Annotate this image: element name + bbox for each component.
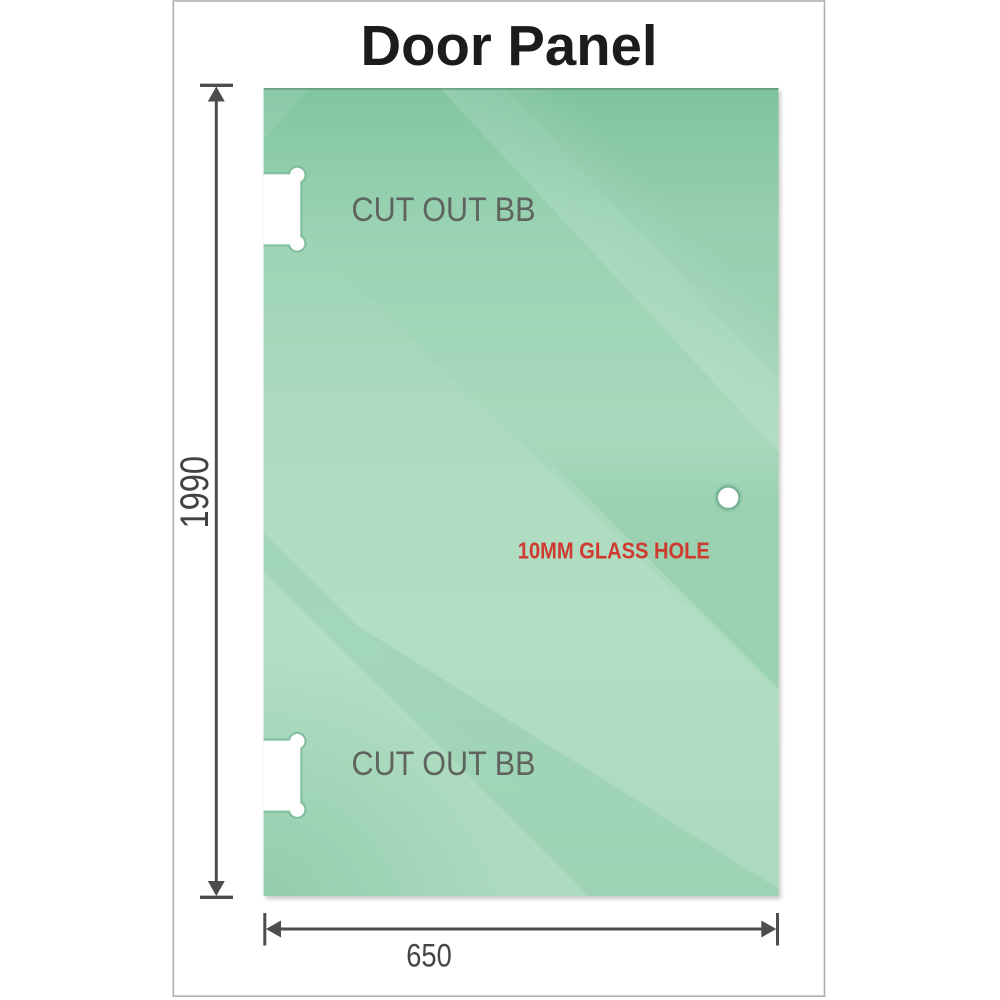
svg-text:650: 650 [406,937,452,973]
svg-text:1990: 1990 [173,456,217,529]
svg-text:CUT OUT BB: CUT OUT BB [352,745,536,783]
svg-text:Door Panel: Door Panel [361,14,658,78]
svg-text:CUT OUT BB: CUT OUT BB [352,191,536,229]
svg-text:10MM GLASS HOLE: 10MM GLASS HOLE [518,538,710,564]
